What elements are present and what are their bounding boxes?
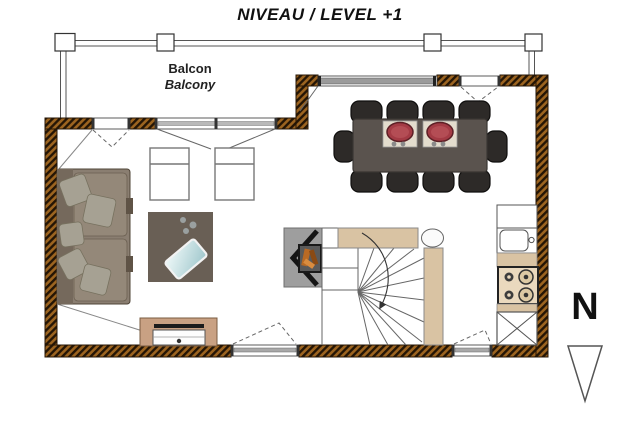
- door-swing-dashed: [93, 130, 129, 147]
- kitchen-sink: [497, 228, 537, 253]
- window-living-room: [155, 118, 277, 149]
- rug-decor-dot: [183, 228, 189, 234]
- wall-top-right-segment: [437, 75, 459, 86]
- wall-bottom-segment: [45, 345, 231, 357]
- railing-post: [55, 34, 75, 52]
- rug-decor-dot: [190, 222, 197, 229]
- floor-plan-drawing: [0, 0, 640, 427]
- casement-open-line: [157, 129, 211, 149]
- corner-diagonal-line: [58, 130, 92, 170]
- wall-right: [536, 75, 548, 357]
- staircase: [322, 228, 444, 345]
- sink-drain: [529, 237, 534, 242]
- sofa-pillow: [59, 221, 85, 247]
- window-tilt-dashed: [233, 323, 296, 344]
- door-top-left: [92, 118, 130, 147]
- wall-left: [45, 118, 57, 357]
- stair-wall-right: [424, 248, 443, 345]
- north-label: N: [566, 288, 604, 326]
- kitchen-units: [497, 205, 538, 345]
- kitchen-stove: [498, 267, 538, 304]
- newel-column: [422, 229, 444, 247]
- fireplace-hearth: [299, 245, 321, 272]
- wall-top-left-segment: [130, 118, 156, 129]
- stair-winder-fan: [358, 248, 424, 345]
- balcony-label-fr: Balcon: [150, 61, 230, 76]
- sofa: [57, 169, 133, 304]
- wall-top-right-segment: [296, 75, 318, 86]
- armchair: [215, 148, 254, 200]
- place-setting: [383, 121, 417, 147]
- dining-chair: [334, 131, 355, 162]
- stair-wall-top: [338, 228, 418, 248]
- railing-post: [525, 34, 542, 51]
- balcony-label-en: Balcony: [150, 77, 230, 92]
- dining-chair: [351, 170, 382, 192]
- tv-unit: [140, 318, 217, 346]
- sofa-pillow: [79, 263, 112, 296]
- dining-chair: [423, 170, 454, 192]
- kitchen-worktop: [497, 304, 537, 312]
- window-tilt-dashed: [454, 330, 491, 344]
- dining-chair: [486, 131, 507, 162]
- door-top-right: [459, 76, 500, 102]
- dining-set: [334, 101, 507, 192]
- tv-screen: [154, 324, 204, 328]
- plan-title: NIVEAU / LEVEL +1: [237, 5, 402, 25]
- window-bottom-right: [452, 330, 492, 356]
- dining-chair: [459, 170, 490, 192]
- railing-post: [424, 34, 441, 51]
- door-swing-dashed: [461, 87, 498, 102]
- north-arrow-triangle: [568, 346, 602, 401]
- sofa-armrest: [126, 256, 133, 272]
- wall-bottom-segment: [299, 345, 452, 357]
- living-room-furniture: [57, 148, 254, 346]
- wall-top-left-segment: [45, 118, 92, 129]
- dining-table: [353, 119, 487, 172]
- rug-decor-dot: [180, 217, 186, 223]
- place-setting: [423, 121, 457, 147]
- dining-chair: [387, 170, 418, 192]
- rug: [148, 212, 213, 282]
- sofa-pillow: [82, 193, 116, 227]
- window-bottom-left: [231, 323, 299, 356]
- kitchen-worktop: [497, 253, 537, 267]
- floor-plan-level-1: NIVEAU / LEVEL +1 Balcon Balcony N: [0, 0, 640, 427]
- kitchen-cabinet-crossed: [497, 312, 537, 345]
- fireplace: [284, 228, 322, 287]
- casement-open-line: [227, 129, 275, 149]
- armchairs: [150, 148, 254, 200]
- railing-post: [157, 34, 174, 51]
- cabinet-knob: [177, 339, 181, 343]
- armchair: [150, 148, 189, 200]
- kitchen-counter: [497, 205, 537, 228]
- sofa-armrest: [126, 198, 133, 214]
